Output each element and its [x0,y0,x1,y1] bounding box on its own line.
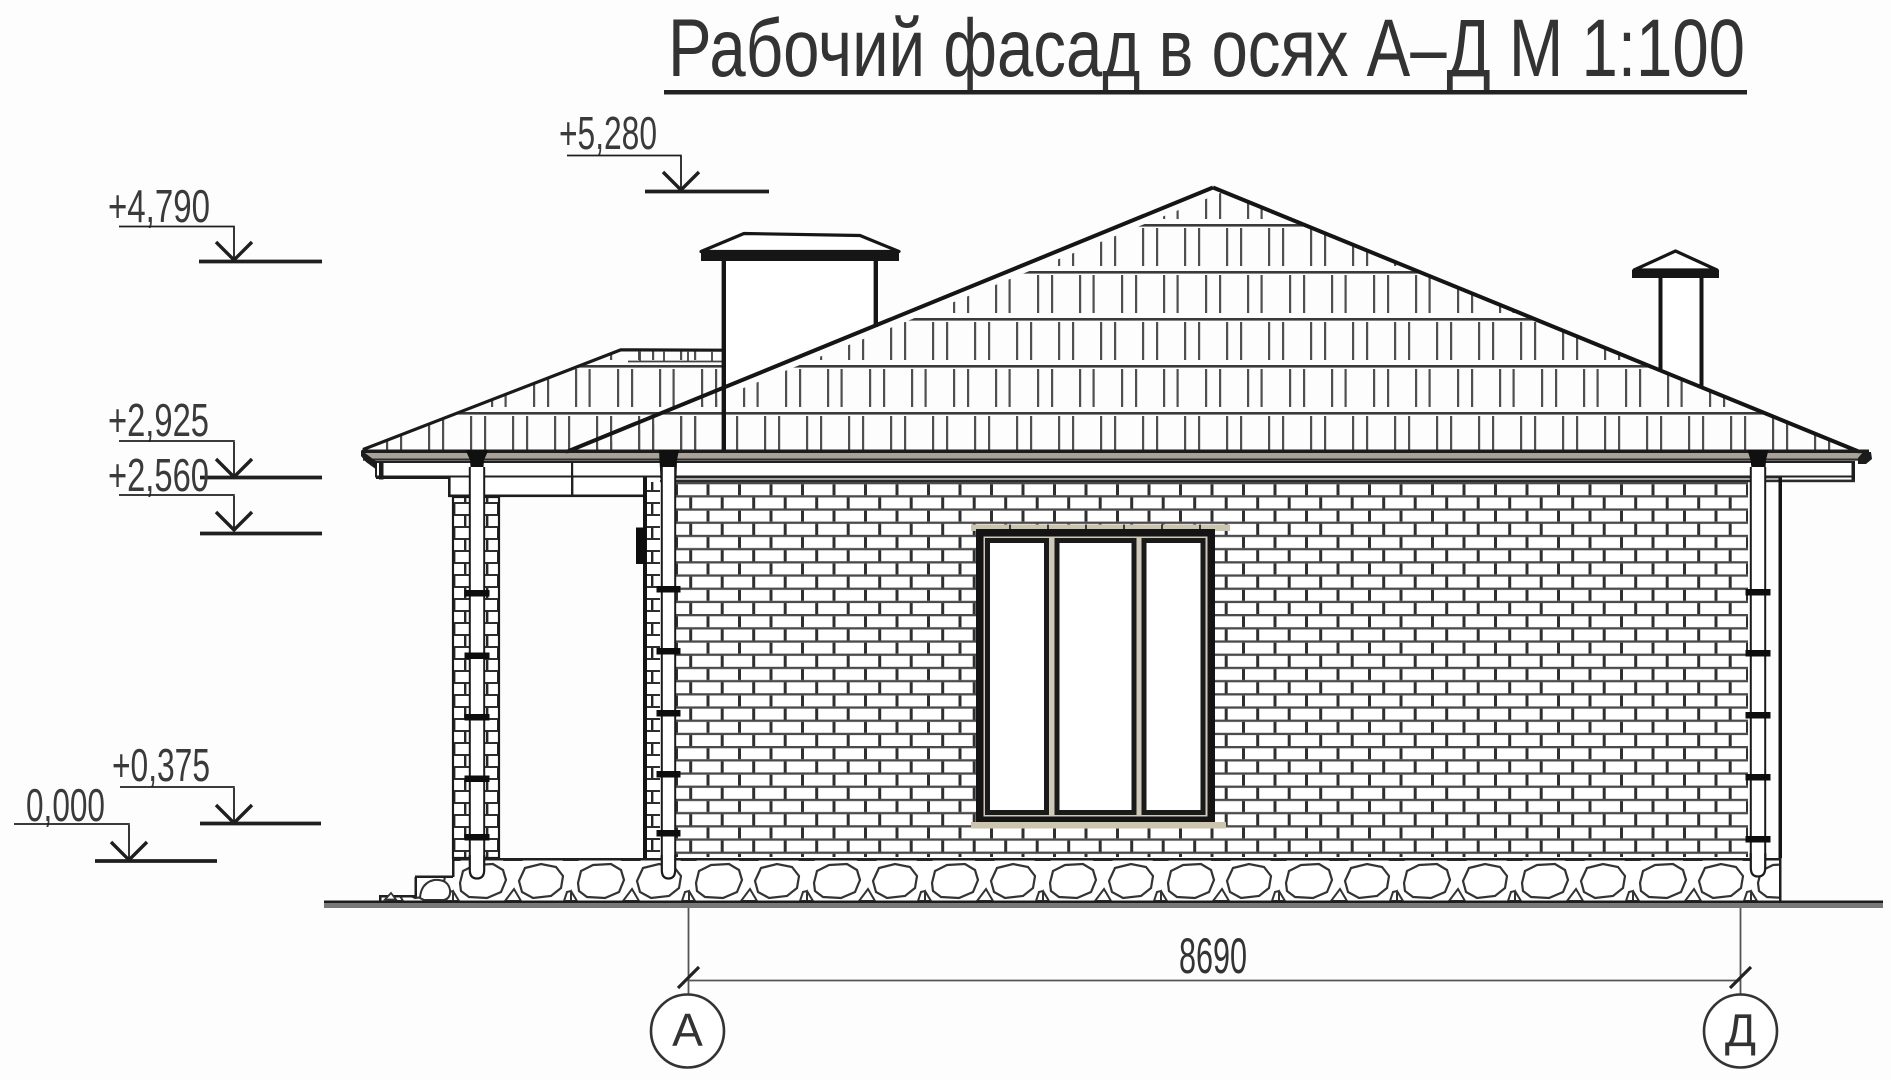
svg-text:Рабочий фасад в осях А–Д М 1:1: Рабочий фасад в осях А–Д М 1:100 [668,3,1745,94]
svg-text:+4,790: +4,790 [108,180,210,232]
svg-text:+0,375: +0,375 [112,739,210,791]
svg-text:+5,280: +5,280 [559,107,657,159]
svg-text:8690: 8690 [1179,928,1247,984]
svg-text:+2,925: +2,925 [108,394,209,446]
svg-text:А: А [672,1004,703,1056]
svg-text:Д: Д [1725,1004,1756,1056]
svg-text:+2,560: +2,560 [108,449,209,501]
